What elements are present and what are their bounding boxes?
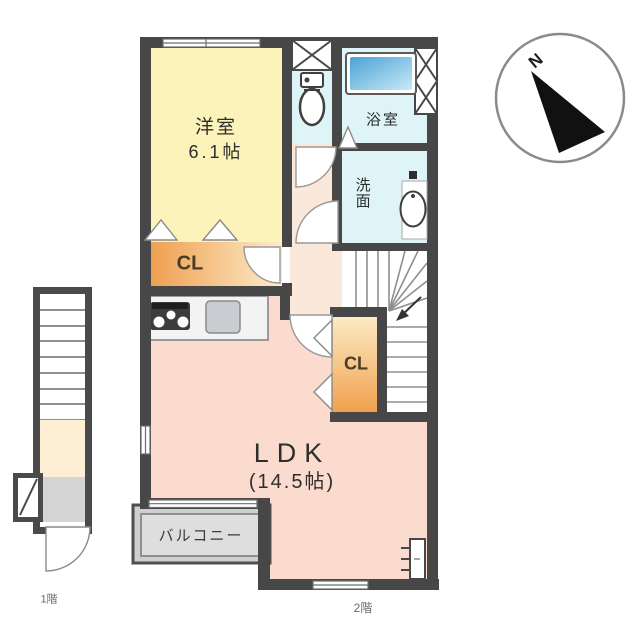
bath-label: 浴室	[366, 111, 400, 128]
first-floor-staircase	[13, 287, 92, 571]
kitchen-sink-icon	[206, 301, 240, 333]
ldk-label: LDK (14.5帖)	[249, 438, 335, 494]
ldk-size: (14.5帖)	[249, 471, 335, 494]
entrance-hall-floor	[40, 420, 85, 477]
closet1-label: CL	[177, 253, 204, 276]
second-floor-note: 2階	[354, 602, 373, 616]
closet2-label: CL	[344, 354, 368, 375]
bathtub-icon	[346, 53, 416, 94]
western-room-label: 洋室 6.1帖	[188, 117, 243, 163]
kitchen-counter	[144, 296, 268, 340]
genkan-floor	[40, 477, 85, 522]
window-top	[163, 39, 260, 47]
ldk-name: LDK	[249, 438, 335, 469]
entrance-door-swing	[46, 527, 90, 571]
window-bottom	[313, 581, 368, 589]
first-floor-note: 1階	[40, 594, 57, 607]
window-balcony-door	[149, 500, 257, 508]
window-left	[141, 426, 150, 454]
washbasin-icon	[401, 171, 428, 239]
washroom-label: 洗面	[353, 177, 370, 209]
hatch-box-top	[292, 40, 332, 70]
floorplan-page: 洋室 6.1帖 浴室 洗面 CL CL LDK (14.5帖) バルコニー 1階…	[0, 0, 640, 640]
floorplan-drawing	[0, 0, 640, 640]
meter-box	[13, 473, 43, 522]
compass	[496, 34, 624, 162]
hatch-box-right	[415, 48, 437, 114]
balcony-label: バルコニー	[159, 527, 244, 544]
western-room-name: 洋室	[188, 117, 243, 139]
western-room-size: 6.1帖	[188, 142, 243, 163]
toilet-icon	[300, 73, 324, 125]
ldk-floor-extension	[270, 510, 427, 579]
